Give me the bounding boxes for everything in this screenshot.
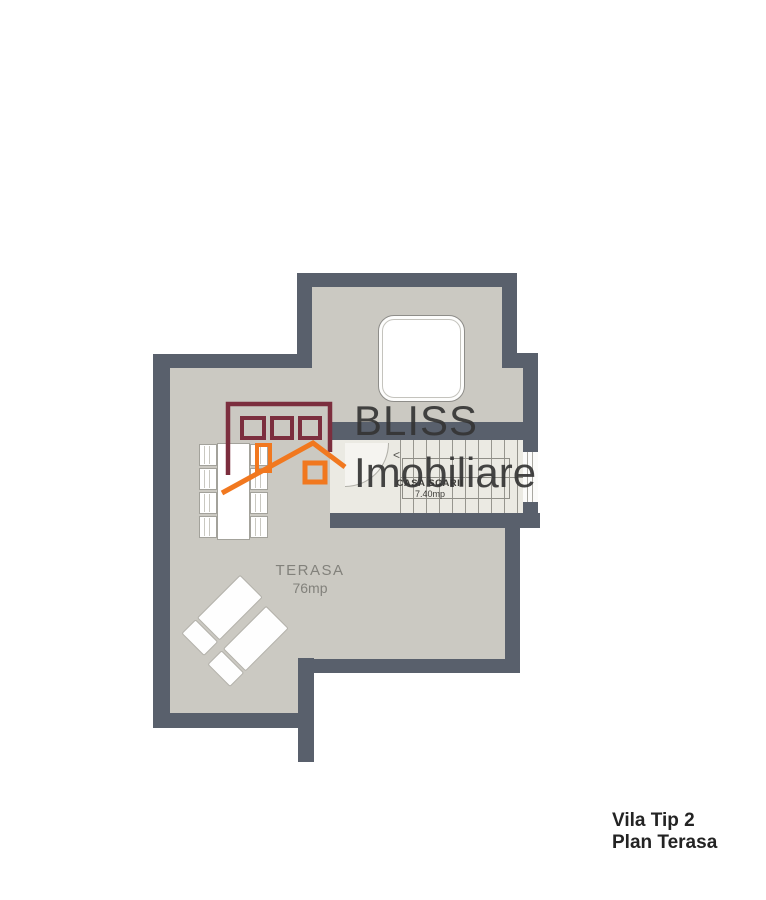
wall-stair-bottom [330,513,540,528]
chair [250,516,268,538]
wall-stub [298,658,314,762]
wall-top-left [154,354,312,368]
wall-right-step [502,353,538,368]
caption-villa-type: Vila Tip 2 [612,810,717,832]
terrace-area: 76mp [255,580,365,597]
skylight [378,315,465,402]
brand-watermark: BLISS Imobiliare [354,398,536,496]
chair [199,516,217,538]
caption-plan-name: Plan Terasa [612,832,717,854]
wall-right-lower [505,528,520,673]
brand-subname: Imobiliare [354,450,536,496]
terrace-label: TERASA 76mp [255,562,365,597]
floorplan-canvas: < CASA SCARII 7.40mp TERASA 76mp [0,0,766,900]
terrace-name: TERASA [255,562,365,580]
plan-caption: Vila Tip 2 Plan Terasa [612,810,717,854]
brand-name: BLISS [354,398,536,444]
skylight-inner-frame [382,319,461,398]
wall-protrusion-top [297,273,517,287]
wall-bottom-left [153,713,298,728]
wall-left [153,354,170,728]
wall-bottom-right [314,659,505,673]
bliss-house-logo-icon [215,395,351,507]
